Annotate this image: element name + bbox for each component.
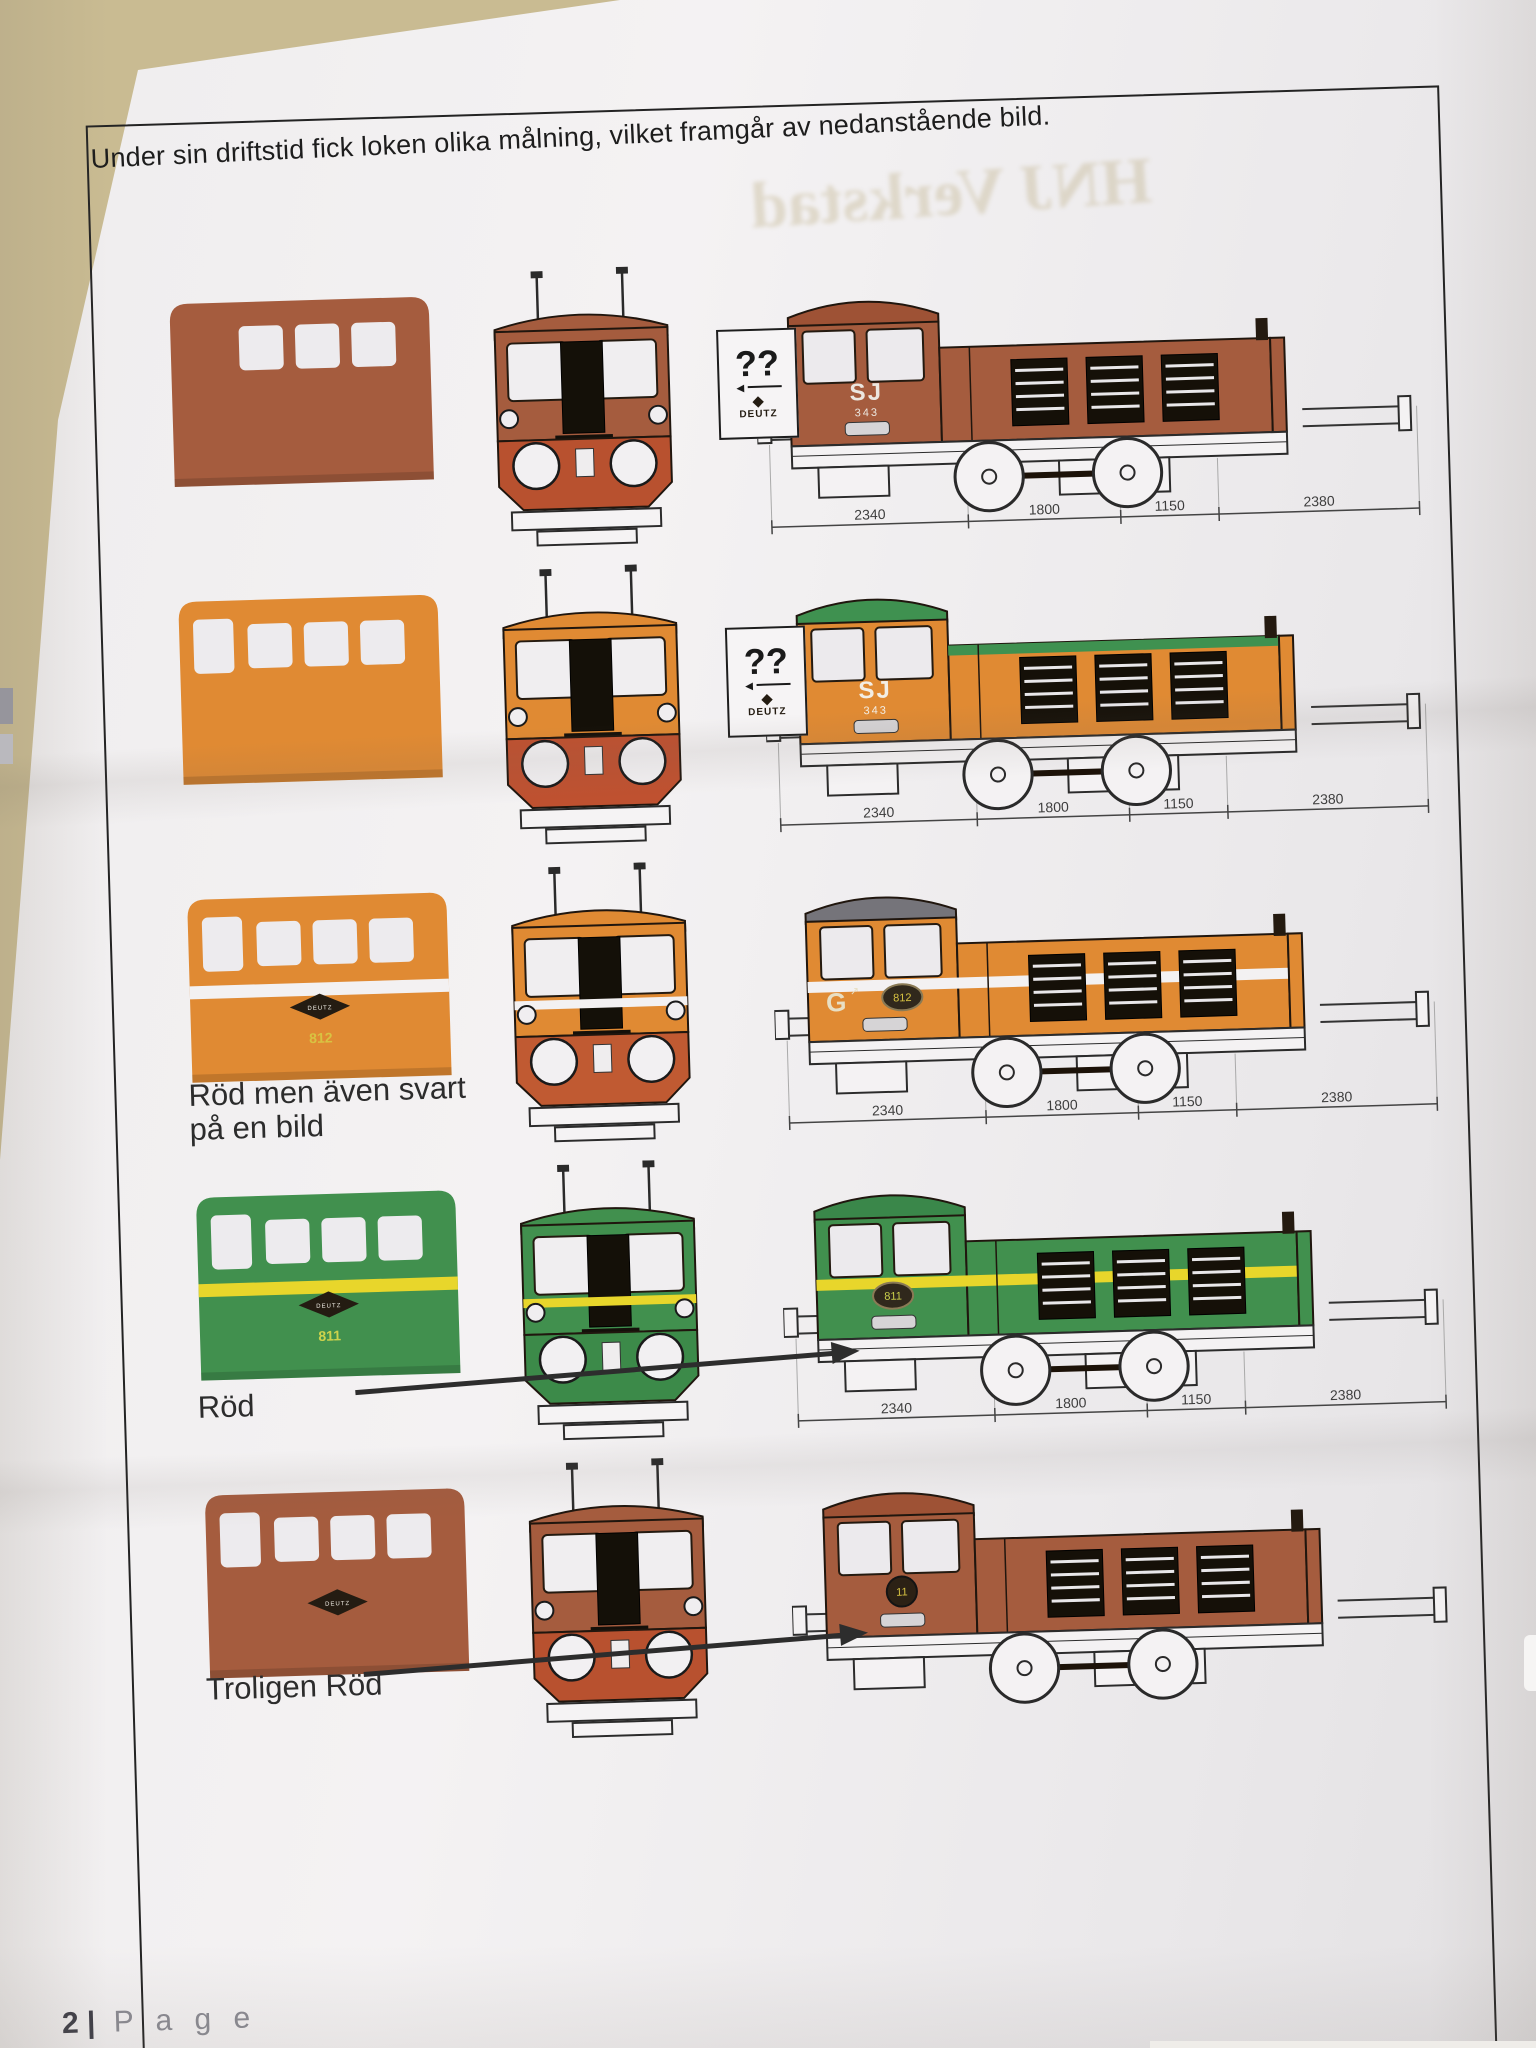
paper-edge-right [1524, 1635, 1536, 1691]
dim-1800: 1800 [1046, 1096, 1078, 1113]
dim-2340: 2340 [863, 804, 895, 821]
dim-2380: 2380 [1312, 790, 1344, 807]
marker-lamp-left [526, 1304, 544, 1322]
loco-row-3: DEUTZ 811 DEUTZ [91, 1135, 1499, 1474]
svg-text:812: 812 [893, 992, 912, 1005]
coupler-box [555, 1124, 655, 1141]
unknown-livery-badge: ?? ◄ ◆ DEUTZ [725, 625, 808, 737]
dim-1150: 1150 [1172, 1093, 1203, 1110]
intake-pipe [622, 271, 623, 317]
window [351, 322, 397, 368]
marker-lamp-left [509, 708, 527, 726]
side-elevation: SJ 343 [752, 255, 1432, 546]
underframe [538, 1402, 687, 1424]
marker-lamp-right [666, 1001, 684, 1019]
svg-text:DEUTZ: DEUTZ [325, 1601, 350, 1608]
exhaust-pipe [563, 1171, 564, 1213]
cab-window [866, 328, 924, 382]
question-marks: ?? [743, 645, 788, 679]
front-elevation: DEUTZ [172, 584, 450, 798]
coupler-box [546, 827, 646, 844]
side-elevation: G ↗ 812 812 [770, 851, 1450, 1142]
buffer-right [1425, 1290, 1438, 1324]
page-content: HNJ Verkstad Under sin driftstid fick lo… [58, 37, 1516, 2048]
front-34-view: DEUTZ [469, 562, 716, 867]
front-elevation: DEUTZ [198, 1478, 476, 1692]
window [247, 623, 293, 669]
cab-window [893, 1222, 951, 1276]
door-window [219, 1512, 261, 1567]
svg-text:SJ: SJ [849, 379, 883, 407]
side-elevation: 811 811 [779, 1149, 1459, 1440]
side-elevation: 11 [788, 1446, 1468, 1737]
headlamp-left [522, 740, 569, 787]
window [369, 917, 415, 963]
marker-lamp-left [535, 1601, 553, 1619]
intake-pipe [657, 1462, 658, 1508]
builder-plate [880, 1613, 924, 1627]
cab-window [875, 626, 933, 680]
dim-1150: 1150 [1181, 1391, 1212, 1408]
windshield-right [596, 339, 657, 398]
round-number-badge: 11 [886, 1576, 917, 1607]
step-box [854, 1657, 925, 1689]
marker-lamp-right [658, 703, 676, 721]
radiator-grille [578, 937, 622, 1030]
radiator-grille [569, 639, 613, 732]
buffer-left [774, 1011, 789, 1039]
dim-1150: 1150 [1154, 497, 1185, 514]
front-elevation: DEUTZ [163, 286, 441, 500]
svg-text:DEUTZ: DEUTZ [316, 1303, 341, 1310]
dim-1800: 1800 [1037, 799, 1069, 816]
radiator-grille [596, 1532, 640, 1625]
dim-2380: 2380 [1303, 493, 1335, 510]
coupler-box [564, 1422, 664, 1439]
headlamp-right [610, 440, 657, 487]
louver-groups [1028, 949, 1236, 1021]
number-plate [593, 1044, 612, 1072]
louver-groups [1020, 651, 1228, 723]
front-34-view: DEUTZ [487, 1158, 734, 1463]
page-word: P a g e [113, 2001, 257, 2038]
door-window [202, 916, 244, 971]
door-window [211, 1214, 253, 1269]
loco-row-4: DEUTZ DEUTZ [100, 1433, 1508, 1772]
g-arrow-icon: ↗ [850, 986, 860, 998]
svg-text:343: 343 [863, 705, 888, 718]
cab-window [802, 330, 856, 384]
deutz-diamond-icon: ◆ [761, 692, 773, 706]
window [295, 323, 341, 369]
buffer-right [1416, 992, 1429, 1026]
number-plate [584, 746, 603, 774]
windshield-left [533, 1236, 594, 1295]
locomotive-rows: DEUTZ DEUTZ [64, 242, 1508, 1773]
windshield-right [614, 935, 675, 994]
question-marks: ?? [735, 347, 780, 381]
radiator-grille [587, 1234, 631, 1327]
exhaust-stack [1255, 318, 1268, 340]
buffer-left [783, 1309, 798, 1337]
svg-text:343: 343 [855, 407, 880, 420]
window [256, 921, 302, 967]
windshield-left [507, 342, 568, 401]
unknown-livery-badge: ?? ◄ ◆ DEUTZ [716, 328, 799, 440]
window [377, 1215, 423, 1261]
svg-text:SJ: SJ [858, 676, 892, 704]
radiator-grille [560, 341, 604, 434]
louver-groups [1011, 354, 1219, 426]
exhaust-stack [1291, 1509, 1304, 1531]
window [330, 1515, 376, 1561]
exhaust-stack [1282, 1212, 1295, 1234]
windshield-left [516, 640, 577, 699]
paper-edge-bottom [1150, 2041, 1536, 2048]
windshield-left [525, 938, 586, 997]
cab-window [902, 1520, 960, 1574]
marker-lamp-right [675, 1299, 693, 1317]
headlamp-left [513, 443, 560, 490]
front-number: 812 [309, 1029, 333, 1046]
underframe [547, 1700, 696, 1722]
underframe [530, 1104, 679, 1126]
intake-pipe [648, 1164, 649, 1210]
headlamp-right [645, 1631, 692, 1678]
windshield-right [623, 1233, 684, 1292]
svg-text:811: 811 [884, 1290, 902, 1303]
exhaust-stack [1273, 914, 1286, 936]
coupler-box [537, 529, 637, 546]
color-annotation: Troligen Röd [206, 1668, 383, 1708]
dim-1150: 1150 [1163, 795, 1194, 812]
front-34-view: DEUTZ [478, 860, 725, 1165]
deutz-wordmark: DEUTZ [748, 707, 787, 719]
svg-text:G: G [826, 987, 847, 1018]
exhaust-pipe [546, 575, 547, 617]
buffer-left [792, 1606, 807, 1634]
window [312, 919, 358, 965]
marker-lamp-right [684, 1597, 702, 1615]
step-box [818, 466, 889, 498]
dim-2340: 2340 [872, 1102, 904, 1119]
headlamp-right [619, 738, 666, 785]
svg-text:11: 11 [896, 1586, 908, 1598]
svg-text:DEUTZ: DEUTZ [307, 1005, 332, 1012]
builder-plate [863, 1017, 907, 1031]
window [238, 325, 284, 371]
windshield-right [605, 637, 666, 696]
sj-marking: SJ 343 [858, 676, 893, 717]
exhaust-stack [1264, 616, 1277, 638]
cab-window [820, 926, 874, 980]
headlamp-right [628, 1035, 675, 1082]
window [303, 621, 349, 667]
window [321, 1217, 367, 1263]
number-plate [576, 448, 595, 476]
buffer-right [1398, 396, 1411, 430]
deutz-wordmark: DEUTZ [739, 409, 778, 421]
binder-tab-bottom [0, 734, 13, 764]
page-number: 2 | [61, 2006, 95, 2040]
oval-number-badge: 811 [873, 1282, 914, 1309]
headlamp-left [530, 1038, 577, 1085]
underframe [521, 806, 670, 828]
marker-lamp-left [500, 410, 518, 428]
intake-pipe [631, 569, 632, 615]
cab-window [829, 1224, 883, 1278]
exhaust-pipe [572, 1469, 573, 1511]
number-plate [602, 1342, 621, 1370]
sj-marking: SJ 343 [849, 379, 884, 420]
window [386, 1513, 432, 1559]
dim-2340: 2340 [881, 1399, 913, 1416]
deutz-diamond-icon: ◆ [752, 395, 764, 409]
front-34-view: DEUTZ [460, 264, 707, 569]
marker-lamp-left [518, 1006, 536, 1024]
step-box [836, 1061, 907, 1093]
photo-of-document: HNJ Verkstad Under sin driftstid fick lo… [0, 0, 1536, 2048]
loco-row-0: DEUTZ DEUTZ [64, 242, 1472, 581]
exhaust-pipe [554, 873, 555, 915]
step-box [827, 763, 898, 795]
marker-lamp-right [649, 406, 667, 424]
color-annotation: Röd [197, 1389, 255, 1425]
cab-window [884, 924, 942, 978]
binder-tab-top [0, 688, 13, 724]
builder-plate [845, 421, 889, 435]
window [360, 620, 406, 666]
louver-groups [1037, 1247, 1245, 1319]
dim-1800: 1800 [1028, 501, 1060, 518]
dim-2380: 2380 [1330, 1386, 1362, 1403]
color-annotation: Röd men även svart på en bild [188, 1069, 500, 1148]
coupler-box [573, 1720, 673, 1737]
dim-2380: 2380 [1321, 1088, 1353, 1105]
window [265, 1219, 311, 1265]
windshield-left [542, 1533, 603, 1592]
buffer-right [1434, 1587, 1447, 1621]
cab-window [838, 1522, 892, 1576]
builder-plate [872, 1315, 916, 1329]
window [274, 1516, 320, 1562]
door-window [193, 619, 235, 674]
builder-plate [854, 719, 898, 733]
dim-1800: 1800 [1055, 1394, 1087, 1411]
intake-pipe [640, 866, 641, 912]
front-34-view: DEUTZ [496, 1456, 743, 1761]
side-elevation: SJ 343 [761, 553, 1441, 844]
exhaust-pipe [537, 277, 538, 319]
cab-window [811, 628, 865, 682]
dim-2340: 2340 [854, 506, 886, 523]
front-elevation: DEUTZ 811 [189, 1180, 467, 1394]
front-elevation: DEUTZ 812 [180, 882, 458, 1096]
windshield-right [632, 1531, 693, 1590]
buffer-right [1407, 694, 1420, 728]
loco-row-2: DEUTZ 812 DEUTZ [82, 838, 1490, 1177]
louver-groups [1046, 1545, 1254, 1617]
underframe [512, 508, 661, 530]
loco-row-1: DEUTZ DEUTZ [73, 540, 1481, 879]
headlamp-right [637, 1333, 684, 1380]
front-number: 811 [318, 1327, 341, 1344]
step-box [845, 1359, 916, 1391]
page-footer: 2 | P a g e [61, 2001, 257, 2041]
